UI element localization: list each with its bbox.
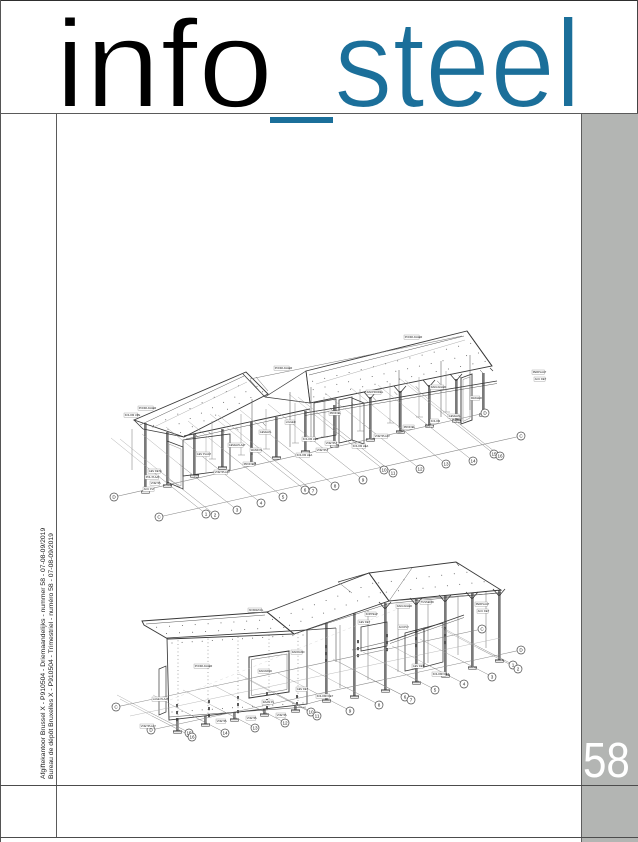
- svg-text:VOETPLT: VOETPLT: [317, 448, 329, 452]
- svg-text:VOETPLAAT: VOETPLAAT: [375, 434, 391, 438]
- svg-text:4: 4: [260, 501, 263, 506]
- svg-text:3: 3: [491, 675, 494, 680]
- svg-text:DAKPROFIEL: DAKPROFIEL: [367, 390, 384, 394]
- svg-text:DAKRAND: DAKRAND: [292, 650, 305, 654]
- svg-text:ACC DET: ACC DET: [478, 609, 490, 613]
- svg-text:WAND PL: WAND PL: [251, 448, 263, 452]
- svg-text:9: 9: [362, 478, 365, 483]
- svg-text:6: 6: [304, 488, 307, 493]
- svg-text:GEV DET: GEV DET: [359, 620, 371, 624]
- svg-text:GEVELPL: GEVELPL: [449, 414, 461, 418]
- svg-text:13: 13: [443, 462, 449, 467]
- svg-text:KOLOM: KOLOM: [431, 419, 440, 423]
- svg-text:7: 7: [312, 489, 315, 494]
- svg-text:VOETPL: VOETPL: [217, 719, 228, 723]
- svg-text:VOETPLAAT: VOETPLAAT: [215, 470, 231, 474]
- svg-text:KOLOM HEA: KOLOM HEA: [353, 444, 369, 448]
- svg-text:8: 8: [378, 703, 381, 708]
- svg-text:KOPPELP: KOPPELP: [366, 612, 378, 616]
- svg-text:POORLIGGER: POORLIGGER: [405, 335, 423, 339]
- svg-text:2: 2: [214, 513, 217, 518]
- svg-text:7: 7: [410, 698, 413, 703]
- svg-text:1: 1: [205, 512, 208, 517]
- svg-text:3: 3: [236, 508, 239, 513]
- svg-text:DRAGER: DRAGER: [471, 396, 482, 400]
- svg-text:DAKLIGGER: DAKLIGGER: [397, 604, 412, 608]
- svg-text:10: 10: [381, 468, 387, 473]
- svg-text:DAKLIGGER: DAKLIGGER: [431, 385, 446, 389]
- svg-text:KOLOM HEA: KOLOM HEA: [297, 453, 313, 457]
- svg-text:TUSSENW: TUSSENW: [421, 600, 435, 604]
- svg-text:12: 12: [417, 467, 423, 472]
- svg-text:GEV DET: GEV DET: [413, 664, 425, 668]
- svg-text:POORLIGGER: POORLIGGER: [275, 366, 293, 370]
- svg-text:KOLOMVOET: KOLOMVOET: [317, 694, 334, 698]
- svg-text:ACC PLT: ACC PLT: [144, 487, 155, 491]
- svg-text:KOLOMVOET: KOLOMVOET: [433, 672, 450, 676]
- svg-text:POORLIGGER: POORLIGGER: [195, 664, 213, 668]
- svg-text:ACCPLT: ACCPLT: [399, 625, 409, 629]
- svg-text:16: 16: [497, 454, 503, 459]
- svg-text:PERPLAAT: PERPLAAT: [476, 602, 490, 606]
- svg-text:RAAM PL: RAAM PL: [263, 700, 275, 704]
- svg-text:POORLIGGER: POORLIGGER: [139, 406, 157, 410]
- svg-text:11: 11: [391, 471, 396, 476]
- svg-text:4: 4: [463, 682, 466, 687]
- svg-text:VOETPL: VOETPL: [247, 716, 258, 720]
- svg-text:NOKDETAIL: NOKDETAIL: [249, 608, 264, 612]
- svg-text:5: 5: [434, 688, 437, 693]
- svg-text:GEV DET: GEV DET: [297, 687, 309, 691]
- svg-text:6: 6: [404, 695, 407, 700]
- svg-text:POL PLAAT: POL PLAAT: [146, 475, 160, 479]
- svg-text:VOETPLT: VOETPLT: [326, 441, 338, 445]
- svg-text:GEV PLAAT: GEV PLAAT: [197, 452, 212, 456]
- svg-text:16: 16: [189, 735, 195, 740]
- svg-text:KOLOM HEA: KOLOM HEA: [303, 437, 319, 441]
- svg-text:LIGGER: LIGGER: [286, 420, 296, 424]
- svg-text:VOETPL: VOETPL: [151, 481, 162, 485]
- svg-text:GEV DETA: GEV DETA: [149, 469, 162, 473]
- svg-text:DAKWAND: DAKWAND: [259, 669, 272, 673]
- svg-text:LAGE PLAAT: LAGE PLAAT: [153, 697, 169, 701]
- svg-text:8: 8: [334, 484, 337, 489]
- svg-text:2: 2: [517, 667, 520, 672]
- svg-text:ACC DET: ACC DET: [535, 377, 547, 381]
- svg-text:PROFIEL: PROFIEL: [330, 411, 342, 415]
- svg-text:5: 5: [282, 495, 285, 500]
- svg-text:12: 12: [282, 721, 288, 726]
- svg-text:10: 10: [308, 710, 314, 715]
- svg-text:VOETPLAAT: VOETPLAAT: [141, 724, 157, 728]
- svg-text:PERPLAAT: PERPLAAT: [533, 370, 547, 374]
- svg-text:GEVELPL: GEVELPL: [260, 430, 272, 434]
- svg-text:PROFIEL: PROFIEL: [244, 462, 256, 466]
- svg-text:11: 11: [315, 714, 320, 719]
- svg-text:13: 13: [252, 726, 258, 731]
- svg-text:PROFIEL: PROFIEL: [404, 425, 416, 429]
- svg-text:KOLOM UPE: KOLOM UPE: [125, 413, 141, 417]
- svg-text:9: 9: [349, 709, 352, 714]
- svg-text:14: 14: [222, 731, 228, 736]
- svg-text:14: 14: [470, 459, 476, 464]
- svg-text:VOETPL: VOETPL: [277, 713, 288, 717]
- svg-text:GEVELPLAAT: GEVELPLAAT: [229, 443, 246, 447]
